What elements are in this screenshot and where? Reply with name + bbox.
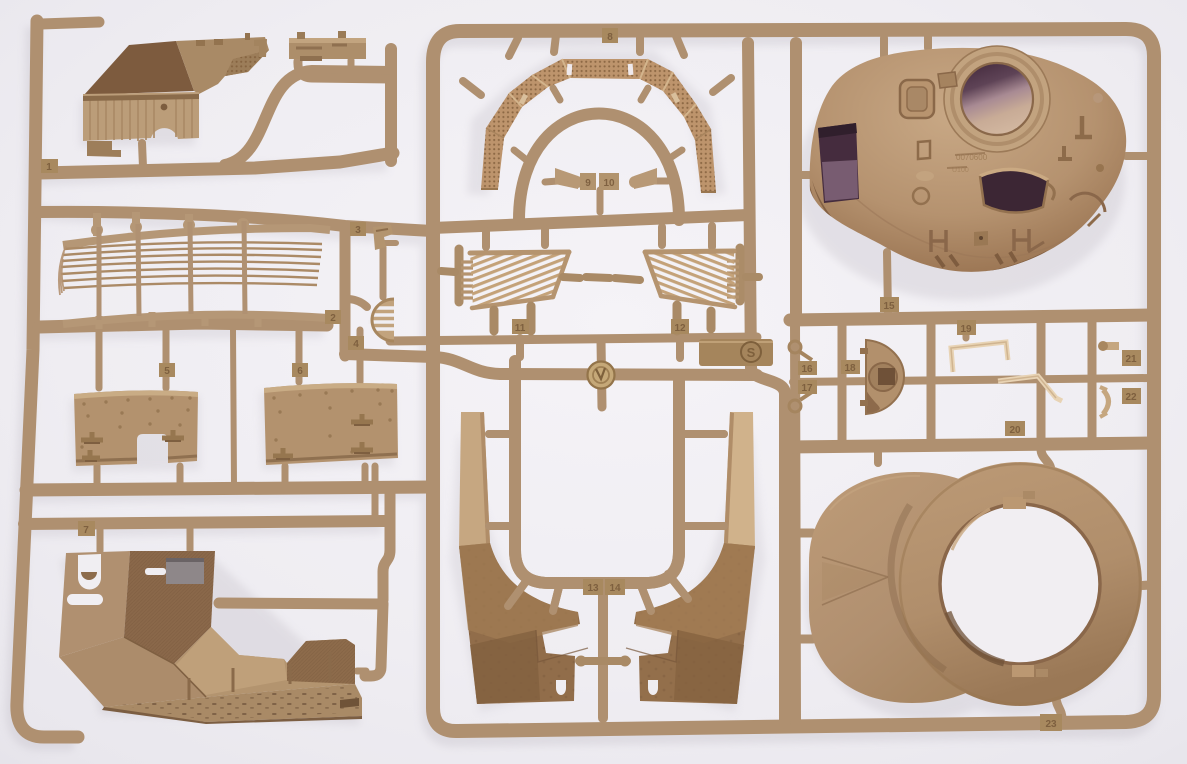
svg-text:19: 19: [960, 324, 972, 335]
svg-text:6: 6: [297, 366, 303, 377]
svg-text:15: 15: [883, 301, 895, 312]
svg-text:22: 22: [1125, 392, 1137, 403]
svg-text:S: S: [747, 345, 756, 360]
svg-text:9: 9: [585, 178, 591, 189]
svg-text:14: 14: [609, 583, 621, 594]
svg-text:13: 13: [587, 583, 599, 594]
svg-text:23: 23: [1045, 719, 1057, 730]
svg-text:3: 3: [355, 225, 361, 236]
svg-text:11: 11: [515, 323, 526, 334]
svg-text:4: 4: [353, 339, 359, 350]
svg-text:1: 1: [46, 162, 52, 173]
svg-text:16: 16: [801, 364, 813, 375]
svg-text:17: 17: [801, 383, 813, 394]
svg-text:21: 21: [1125, 354, 1137, 365]
svg-text:2: 2: [330, 313, 336, 324]
svg-text:12: 12: [674, 323, 686, 334]
svg-text:10: 10: [603, 178, 615, 189]
svg-text:20: 20: [1009, 425, 1021, 436]
svg-text:8: 8: [607, 32, 613, 43]
svg-text:5: 5: [164, 366, 170, 377]
svg-text:18: 18: [844, 363, 856, 374]
svg-text:7: 7: [83, 525, 89, 536]
